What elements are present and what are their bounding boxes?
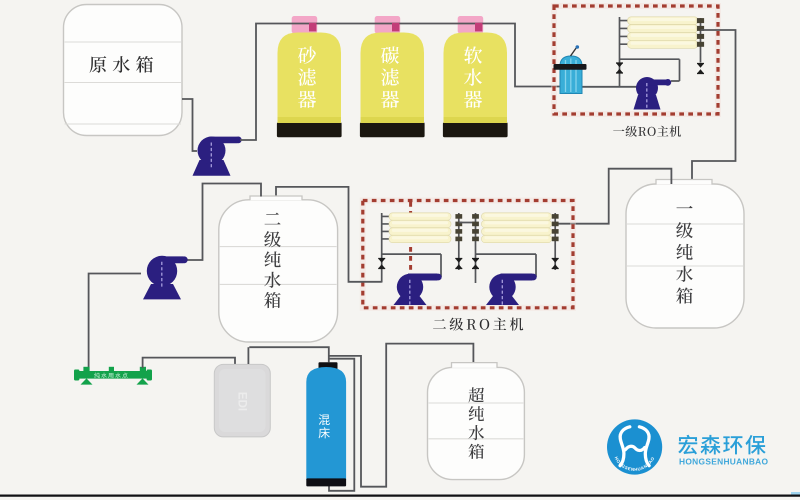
svg-text:EDI: EDI	[236, 392, 248, 411]
svg-text:HONGSENHUANBAO: HONGSENHUANBAO	[679, 457, 769, 467]
